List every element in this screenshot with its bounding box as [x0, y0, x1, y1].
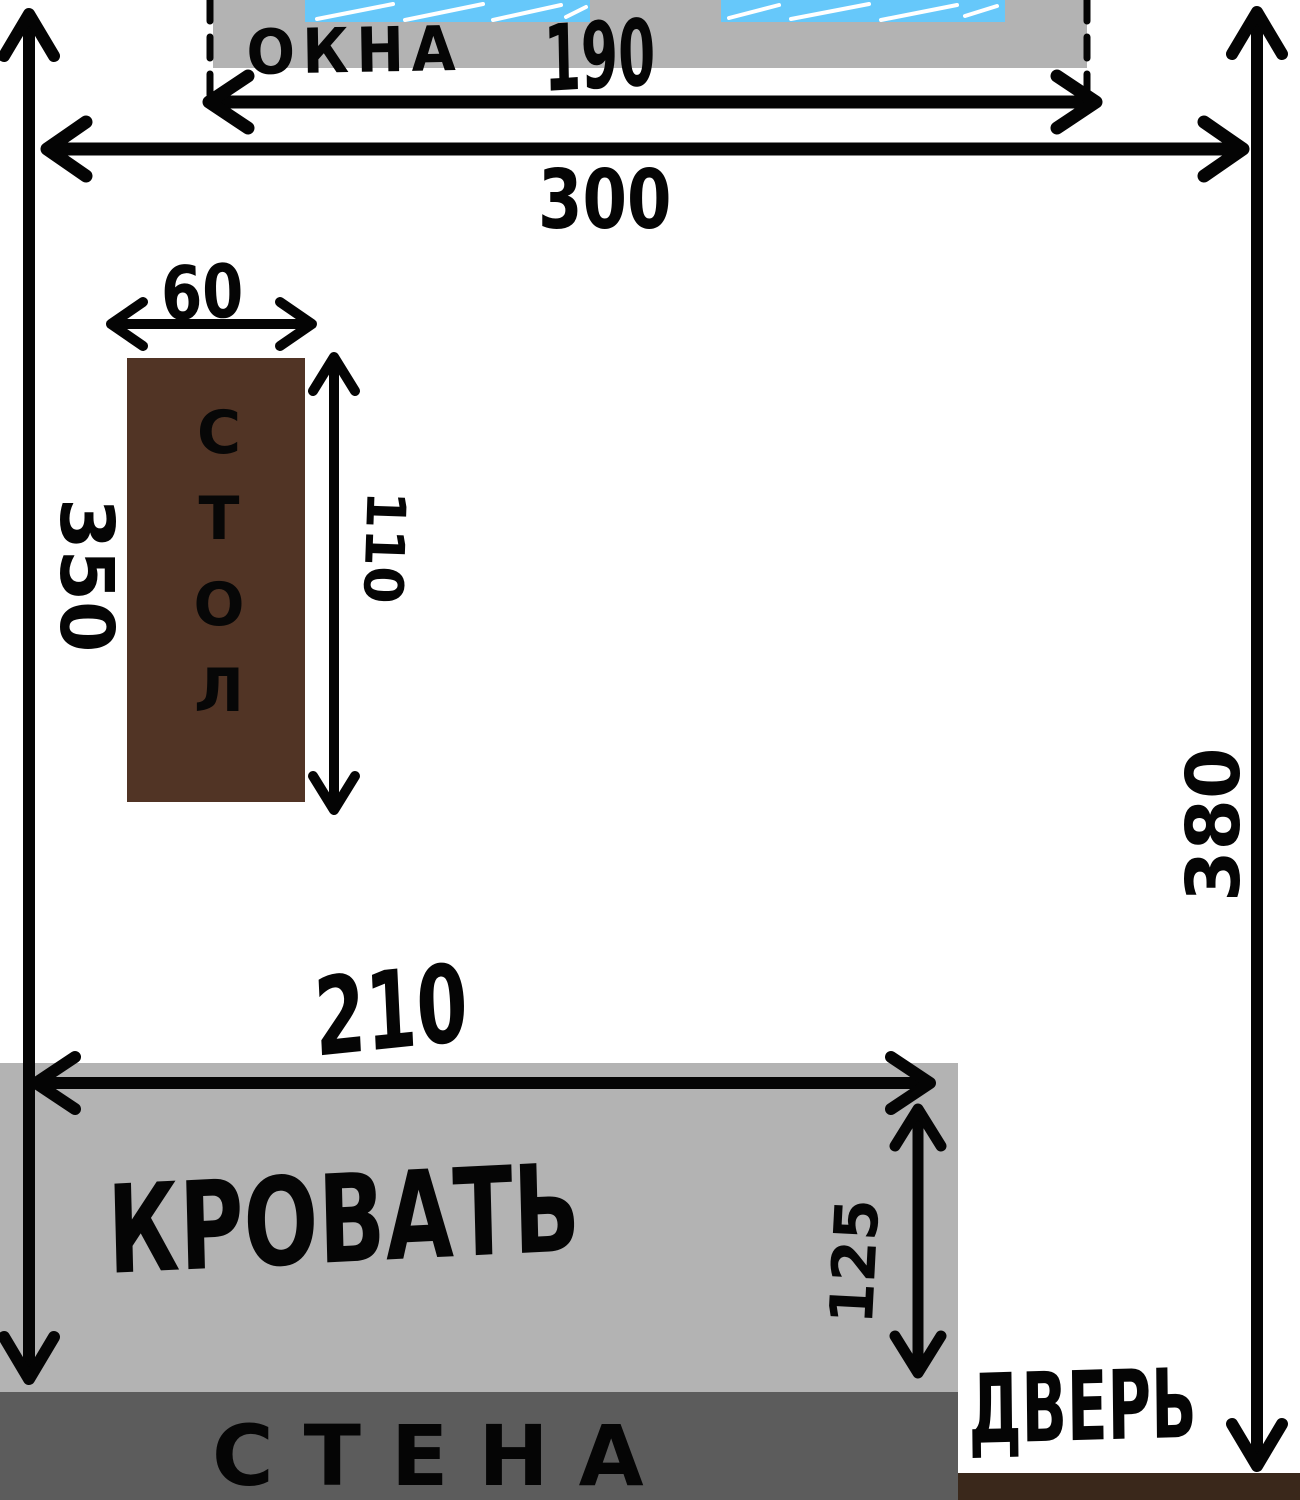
wall-label: СТЕНА — [212, 1414, 674, 1498]
dim-label-table-length-110: 110 — [355, 490, 412, 588]
window-glass-hatch-icon — [721, 0, 1005, 22]
window-2 — [721, 0, 1005, 22]
door-side-wall-rect — [958, 1473, 1300, 1500]
dim-label-bed-width-125: 125 — [822, 1203, 888, 1326]
windows-label: ОКНА — [246, 18, 463, 84]
door-label: ДВЕРЬ — [968, 1356, 1197, 1458]
dim-label-right-wall-380: 380 — [1177, 752, 1251, 902]
dim-arrow-right-wall-380 — [1232, 12, 1282, 1466]
bed-label: КРОВАТЬ — [106, 1147, 581, 1292]
dim-label-room-width-300: 300 — [538, 160, 672, 242]
floor-plan-canvas: ОКНА 190 300 350 380 60 110 СТОЛ 210 125… — [0, 0, 1300, 1500]
dim-label-bed-length-210: 210 — [312, 950, 470, 1073]
dim-label-left-wall-350: 350 — [49, 498, 123, 648]
dim-arrow-table-length-110 — [313, 357, 355, 810]
table-label: СТОЛ — [178, 398, 254, 728]
dim-label-windows-190: 190 — [543, 7, 656, 106]
dim-label-table-width-60: 60 — [160, 254, 244, 332]
